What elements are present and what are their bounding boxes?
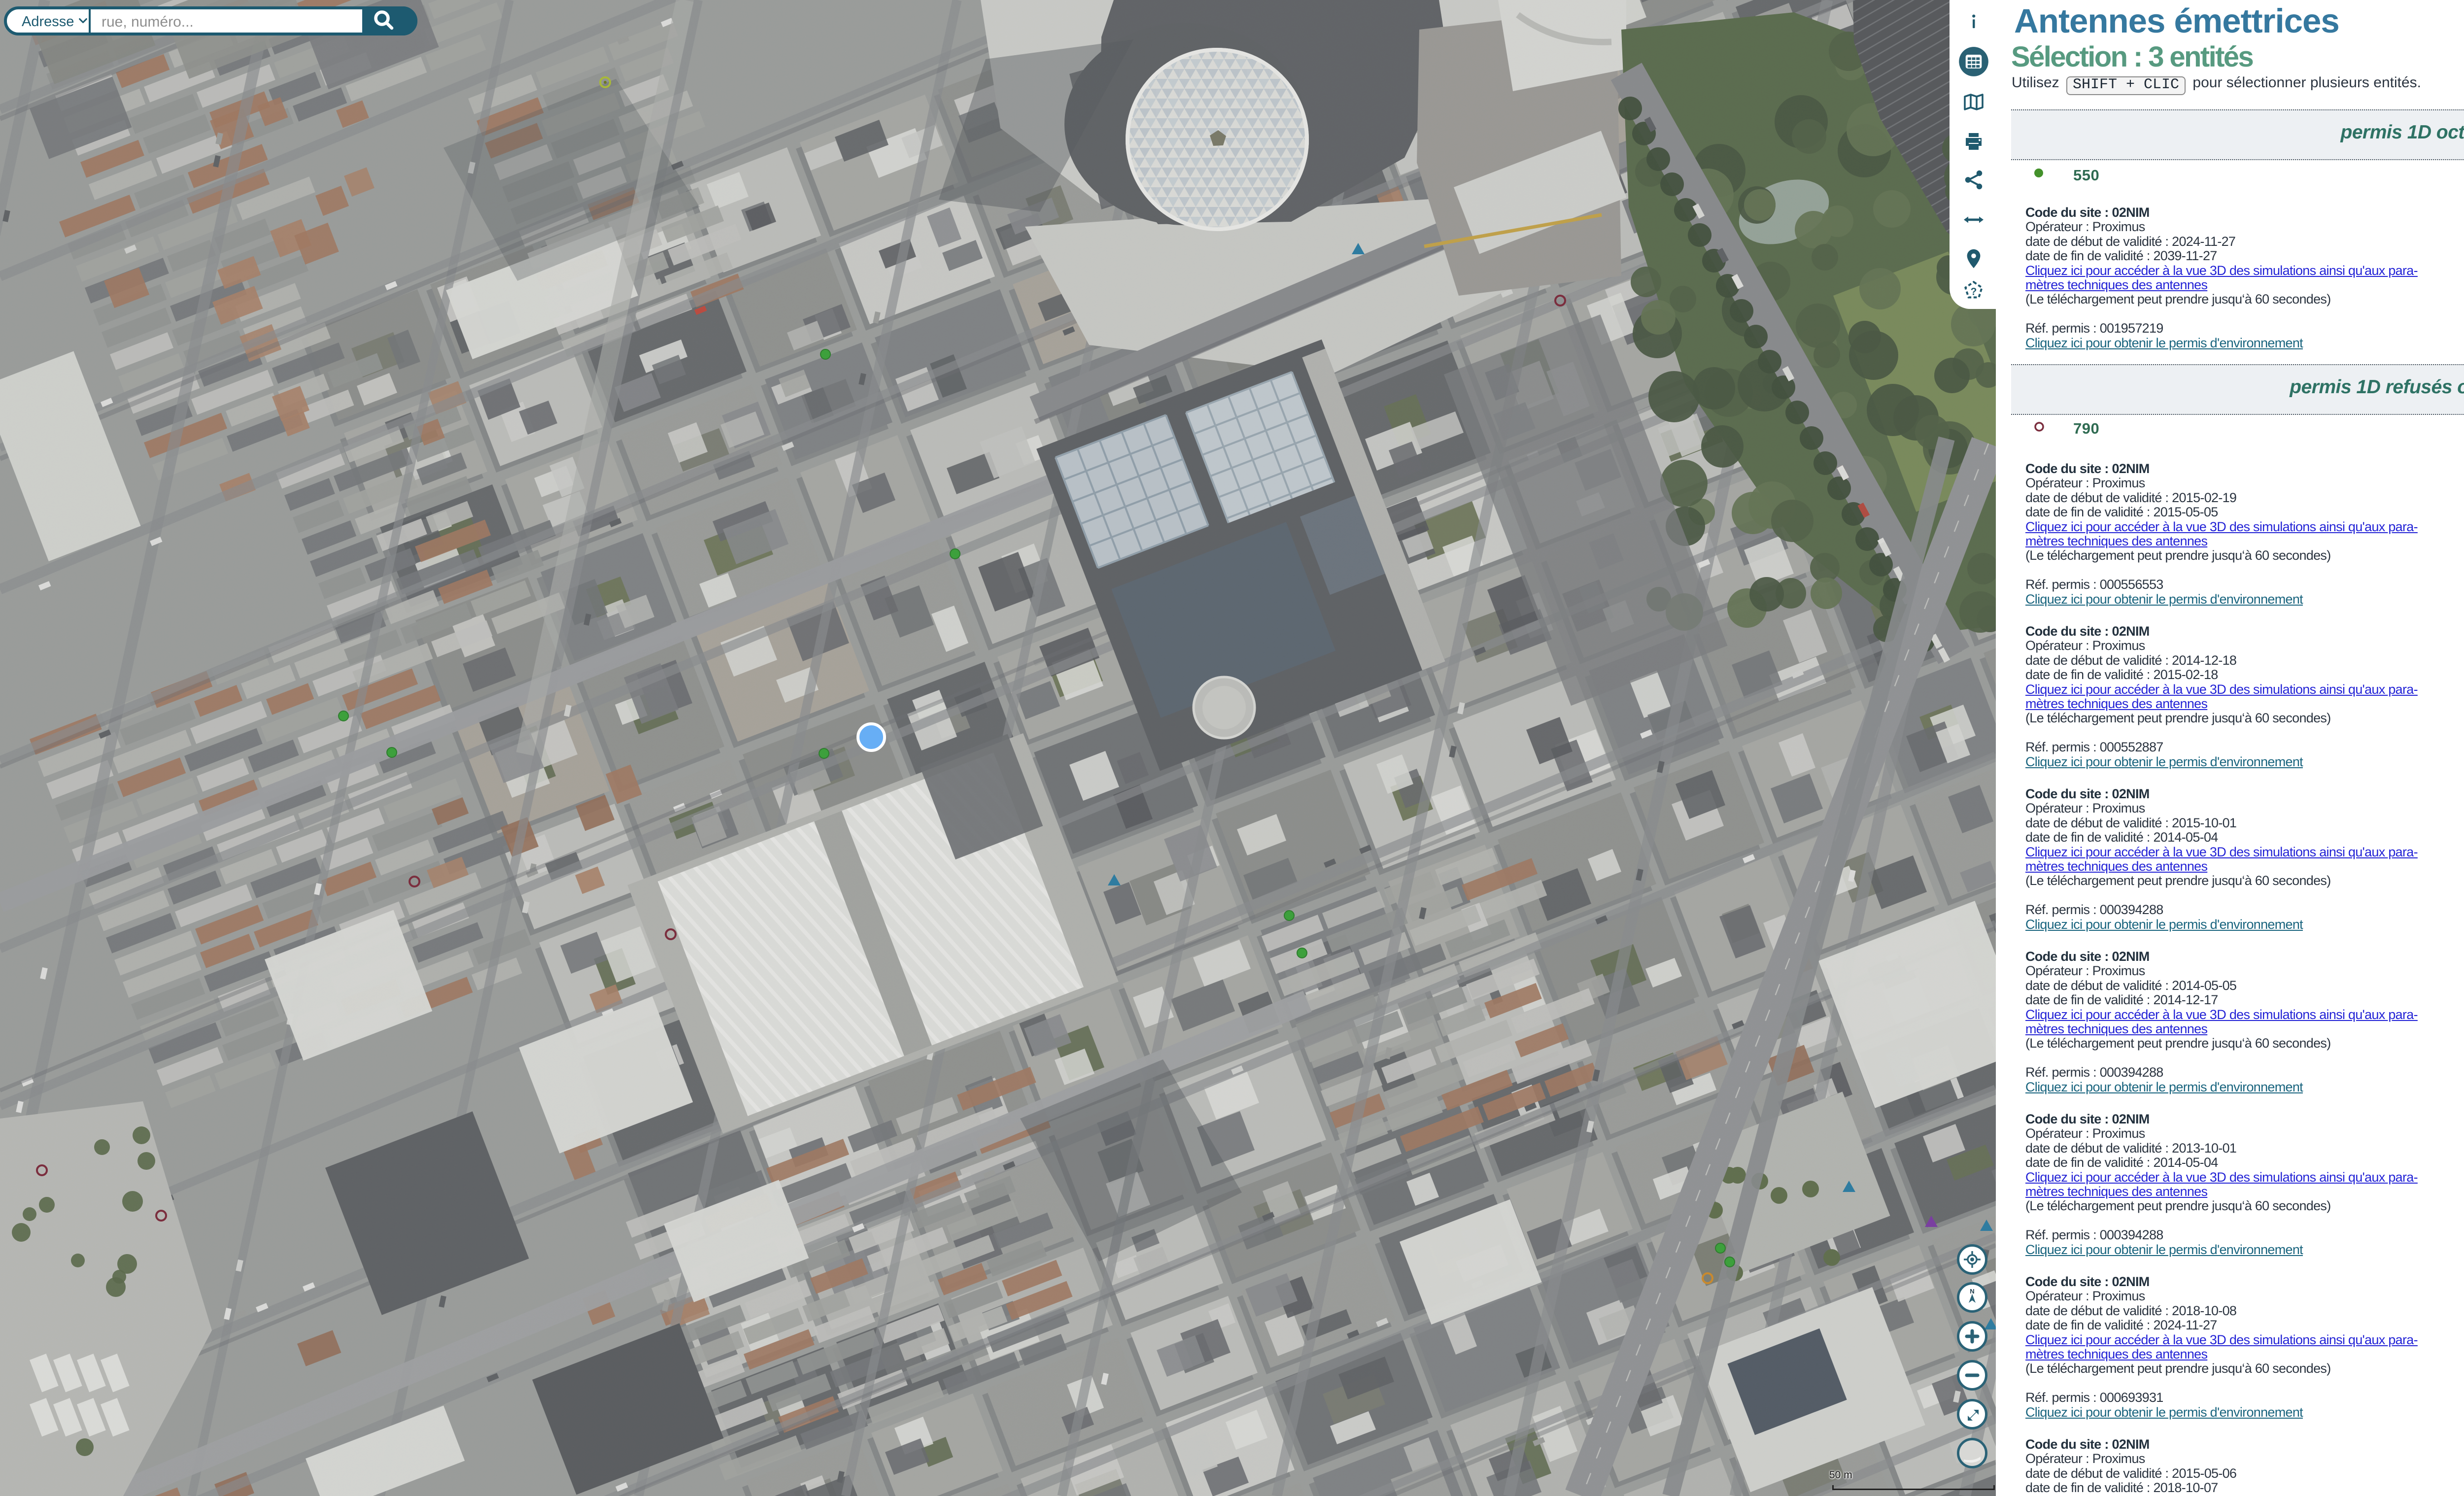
svg-text:N: N [1970, 1288, 1974, 1295]
svg-text:?: ? [1971, 286, 1977, 297]
